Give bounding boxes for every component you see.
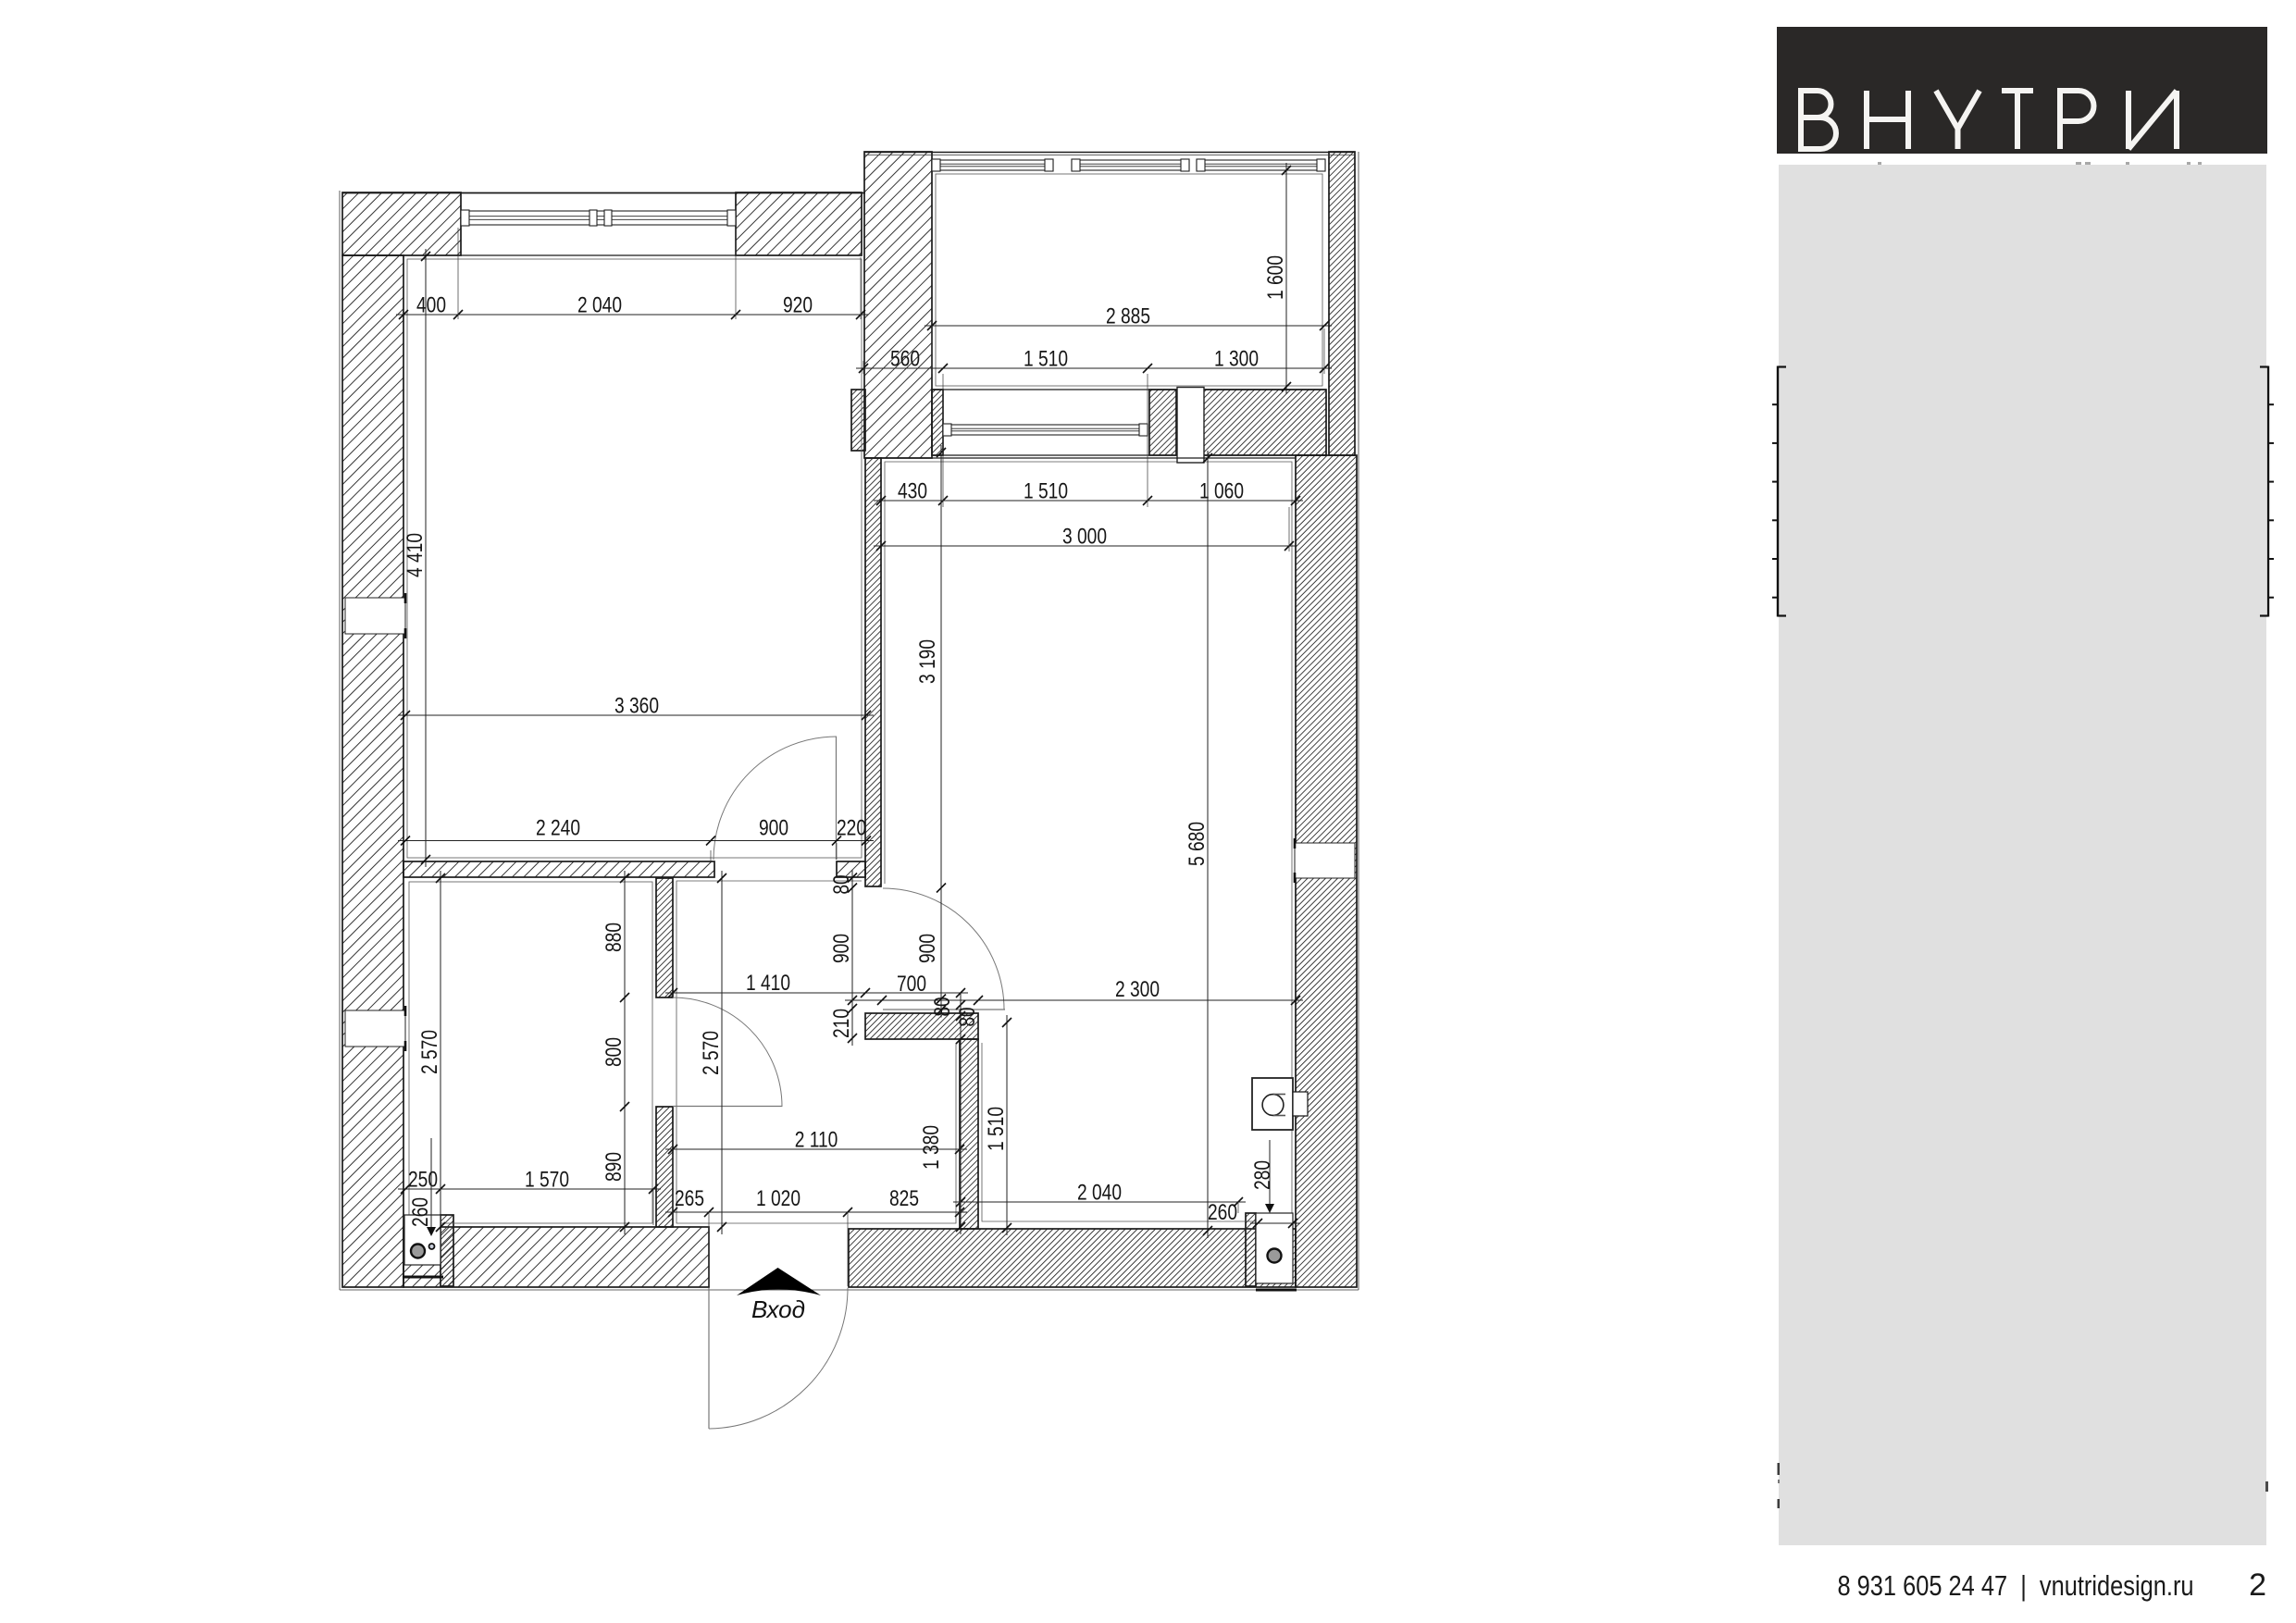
svg-text:1 600: 1 600 (1262, 255, 1288, 300)
svg-text:700: 700 (897, 971, 926, 997)
svg-text:2: 2 (2249, 1567, 2266, 1603)
svg-text:920: 920 (783, 291, 813, 317)
svg-text:5 680: 5 680 (1184, 822, 1210, 866)
svg-text:800: 800 (601, 1037, 627, 1067)
svg-text:3 190: 3 190 (914, 639, 940, 684)
svg-text:2 300: 2 300 (1115, 976, 1160, 1002)
svg-text:1 570: 1 570 (525, 1166, 569, 1192)
svg-text:1 410: 1 410 (746, 970, 790, 996)
svg-text:1 510: 1 510 (983, 1107, 1009, 1151)
svg-text:260: 260 (1208, 1199, 1237, 1225)
svg-text:1 510: 1 510 (1024, 345, 1068, 371)
svg-text:2 110: 2 110 (795, 1126, 838, 1152)
svg-text:2 040: 2 040 (1077, 1179, 1122, 1205)
svg-text:400: 400 (416, 291, 446, 317)
svg-text:900: 900 (759, 814, 788, 840)
svg-text:2 240: 2 240 (536, 814, 580, 840)
svg-text:2 570: 2 570 (416, 1030, 442, 1074)
svg-text:890: 890 (601, 1152, 627, 1182)
svg-text:560: 560 (890, 345, 920, 371)
svg-text:260: 260 (407, 1197, 433, 1227)
svg-text:280: 280 (1249, 1160, 1275, 1190)
svg-text:80: 80 (929, 997, 955, 1016)
svg-text:430: 430 (898, 477, 927, 503)
svg-text:1 510: 1 510 (1024, 477, 1068, 503)
svg-text:825: 825 (889, 1185, 919, 1211)
svg-text:Вход: Вход (751, 1295, 805, 1323)
svg-text:4 410: 4 410 (402, 533, 428, 577)
svg-text:1 380: 1 380 (918, 1125, 944, 1170)
svg-text:900: 900 (828, 934, 854, 963)
svg-text:1 060: 1 060 (1199, 477, 1244, 503)
svg-text:3 000: 3 000 (1062, 523, 1107, 549)
svg-text:900: 900 (914, 934, 940, 963)
svg-text:210: 210 (828, 1009, 854, 1038)
svg-text:265: 265 (675, 1185, 704, 1211)
svg-text:880: 880 (601, 923, 627, 952)
svg-text:80: 80 (954, 1007, 980, 1026)
svg-text:2 885: 2 885 (1106, 303, 1150, 328)
svg-text:1 020: 1 020 (756, 1185, 800, 1211)
svg-text:80: 80 (828, 874, 854, 894)
svg-text:2 040: 2 040 (577, 291, 622, 317)
svg-text:1 300: 1 300 (1214, 345, 1259, 371)
svg-text:250: 250 (408, 1166, 438, 1192)
svg-text:2 570: 2 570 (698, 1031, 724, 1075)
svg-text:3 360: 3 360 (614, 692, 659, 718)
svg-text:220: 220 (837, 814, 866, 840)
svg-text:8 931 605 24 47 | vnutridesi: 8 931 605 24 47 | vnutridesign.ru (1837, 1570, 2193, 1603)
